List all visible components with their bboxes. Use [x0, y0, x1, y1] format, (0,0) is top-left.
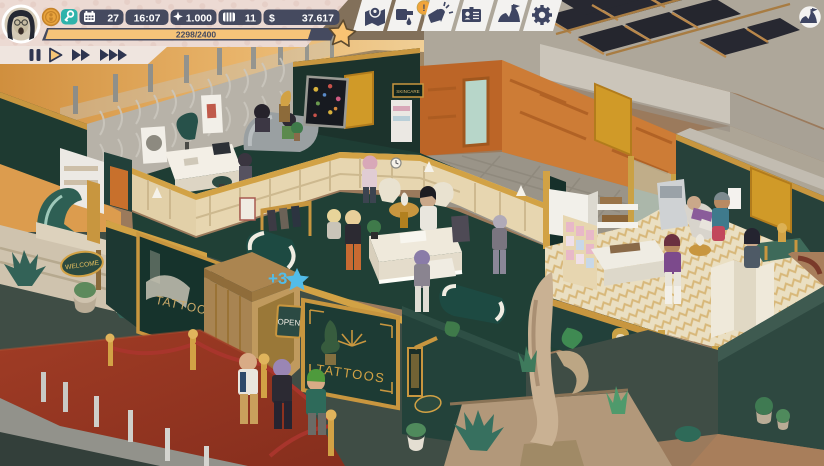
svg-text:16:07: 16:07: [134, 13, 161, 25]
svg-text:SKINCARE: SKINCARE: [396, 89, 420, 94]
svg-text:37.617: 37.617: [302, 13, 334, 25]
svg-text:OPEN: OPEN: [277, 317, 300, 328]
svg-text:2298/2400: 2298/2400: [176, 30, 216, 40]
svg-text:27: 27: [107, 13, 119, 25]
svg-text:1.000: 1.000: [186, 13, 212, 25]
svg-text:!: !: [422, 3, 425, 14]
svg-text:11: 11: [245, 13, 256, 25]
svg-text:$: $: [269, 13, 275, 25]
svg-text:+3: +3: [268, 269, 287, 288]
